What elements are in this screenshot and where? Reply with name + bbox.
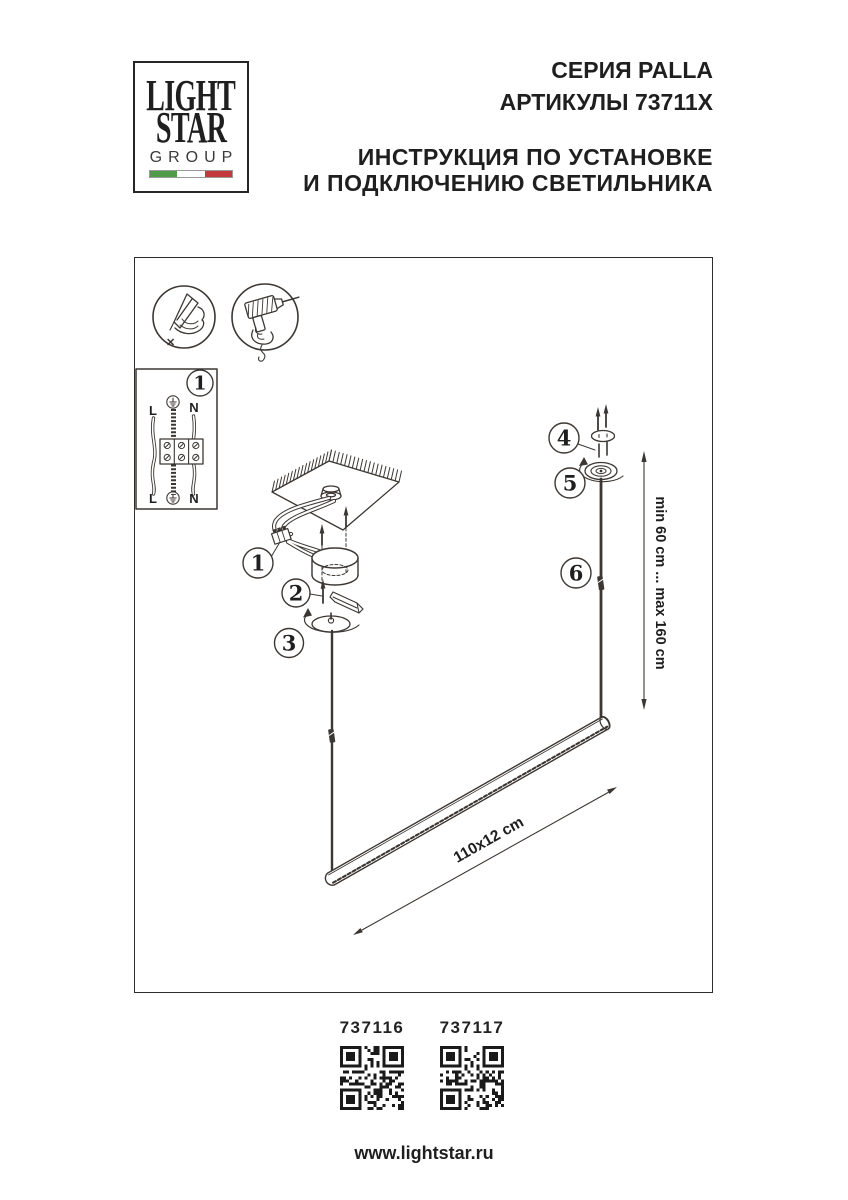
wire-label-N-top: N [189, 400, 198, 415]
step-3-badge: 3 [282, 631, 297, 656]
installation-diagram-frame: ✕ 1 [134, 257, 713, 993]
flag-red-segment [205, 171, 232, 177]
flag-green-segment [150, 171, 177, 177]
suspension-height-dimension: min 60 cm ... max 160 cm [641, 451, 668, 710]
canopy-left [303, 608, 359, 632]
earth-ground-icon-top [167, 396, 179, 408]
cable-connector [597, 576, 604, 591]
mounting-bracket [330, 592, 363, 613]
step-5-badge: 5 [563, 471, 578, 496]
articles-title: АРТИКУЛЫ 73711X [500, 89, 713, 116]
drill-tool-icon [232, 284, 305, 361]
qr-code-2 [440, 1046, 504, 1110]
step-4-badge: 4 [557, 426, 572, 451]
drill-mark-x: ✕ [166, 337, 175, 349]
earth-ground-icon-bottom [167, 492, 179, 504]
step-badges: 1 2 3 4 5 6 [243, 423, 595, 658]
qr-code-1 [340, 1046, 404, 1110]
website-url: www.lightstar.ru [0, 1143, 848, 1164]
qr-label-1: 737116 [338, 1018, 406, 1038]
instruction-title-line2: И ПОДКЛЮЧЕНИЮ СВЕТИЛЬНИКА [303, 170, 713, 197]
rod-connector [328, 729, 335, 743]
instruction-title-line1: ИНСТРУКЦИЯ ПО УСТАНОВКЕ [358, 144, 713, 171]
wiring-diagram: 1 L N L N [136, 369, 217, 509]
mounting-ring [312, 548, 358, 585]
fixture-size-dimension: 110x12 cm [353, 787, 617, 935]
step-6-badge: 6 [569, 561, 584, 586]
wire-label-L-top: L [149, 403, 157, 418]
ceiling-plate-right [592, 404, 615, 457]
series-title: СЕРИЯ PALLA [551, 57, 713, 84]
instruction-sheet: LIGHT STAR GROUP СЕРИЯ PALLA АРТИКУЛЫ 73… [0, 0, 848, 1200]
suspension-height-label: min 60 cm ... max 160 cm [652, 496, 668, 669]
installation-diagram: ✕ 1 [135, 258, 712, 992]
logo-group-text: GROUP [150, 150, 239, 166]
qr-label-2: 737117 [438, 1018, 506, 1038]
suspension-rod [328, 631, 335, 871]
step-1-badge: 1 [251, 551, 266, 576]
lightstar-logo: LIGHT STAR GROUP [133, 61, 249, 193]
italian-flag-stripe [149, 170, 233, 178]
suspension-cable [597, 479, 604, 717]
terminal-block [160, 439, 203, 464]
step-2-badge: 2 [289, 581, 304, 606]
marking-tool-icon: ✕ [153, 286, 215, 349]
flag-white-segment [177, 171, 204, 177]
wiring-step-badge: 1 [193, 373, 206, 395]
